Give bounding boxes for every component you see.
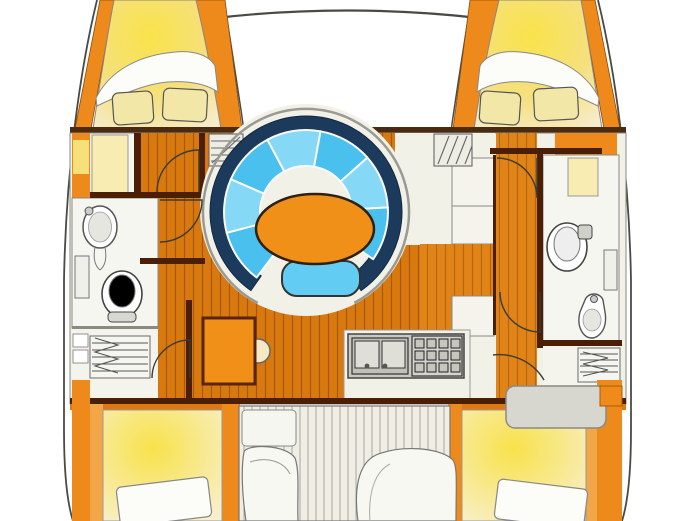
starboard-bow-pillow-right [533, 87, 579, 121]
port-aft-walkway-inner [90, 404, 103, 521]
galley-stove [412, 336, 462, 376]
port-hull-interior [72, 133, 206, 404]
galley-counter-2 [452, 206, 494, 244]
port-wardrobe [92, 135, 128, 196]
starboard-wardrobe [568, 158, 598, 196]
port-bow-pillow-right [162, 88, 208, 122]
starboard-fore-wall [490, 148, 602, 154]
floor-plan-canvas [0, 0, 695, 521]
port-bow-cabin [75, 0, 242, 129]
port-locker-2 [73, 350, 88, 363]
nav-desk [203, 318, 255, 384]
port-bow-pillow-left [112, 91, 154, 126]
cockpit-bench-aft [506, 386, 606, 428]
galley-partition [493, 155, 496, 335]
forward-crossbeam [216, 11, 479, 19]
port-corridor-divider [140, 258, 205, 264]
port-toilet-tank [108, 312, 136, 322]
port-fore-wall-vertical [134, 133, 141, 198]
cockpit-locker [242, 410, 296, 446]
starboard-head-shelf [604, 250, 617, 290]
starboard-inner-corridor [496, 133, 537, 404]
port-head-shelf [75, 256, 89, 298]
port-aft-walkway [72, 380, 90, 521]
cockpit-seat-port [242, 447, 298, 521]
starboard-bow-pillow-left [479, 91, 521, 126]
galley-unit [344, 330, 470, 402]
port-locker-1 [73, 334, 88, 347]
starboard-bow-cabin [453, 0, 620, 129]
port-head-fwd-wall [90, 192, 205, 198]
port-stairs [90, 336, 150, 378]
salon-bench [282, 261, 360, 296]
port-toilet-seat [109, 275, 135, 307]
trampoline [216, 11, 479, 19]
galley-faucet-left [365, 364, 370, 369]
galley-faucet-right [383, 364, 388, 369]
salon-table [256, 194, 374, 264]
starboard-toilet-tank [578, 225, 592, 239]
starboard-toilet-seat [554, 227, 580, 261]
starboard-stairs [578, 348, 620, 382]
cockpit-seat-center [356, 449, 456, 521]
catamaran-floor-plan [0, 0, 695, 521]
starboard-sink-faucet [591, 296, 598, 303]
starboard-sink-bowl [583, 309, 601, 331]
starboard-companionway-hatch [434, 134, 472, 166]
port-sink-bowl [89, 212, 112, 242]
port-nav-wall [186, 300, 192, 404]
starboard-head-aft-wall [537, 340, 622, 346]
port-walkway-glow [73, 140, 89, 174]
salon-settee [203, 109, 409, 303]
starboard-transom-step [600, 386, 622, 406]
port-sink-faucet [85, 207, 93, 215]
port-head-aft-wall [72, 326, 158, 329]
port-aft-walkway-cockpit [222, 404, 239, 521]
